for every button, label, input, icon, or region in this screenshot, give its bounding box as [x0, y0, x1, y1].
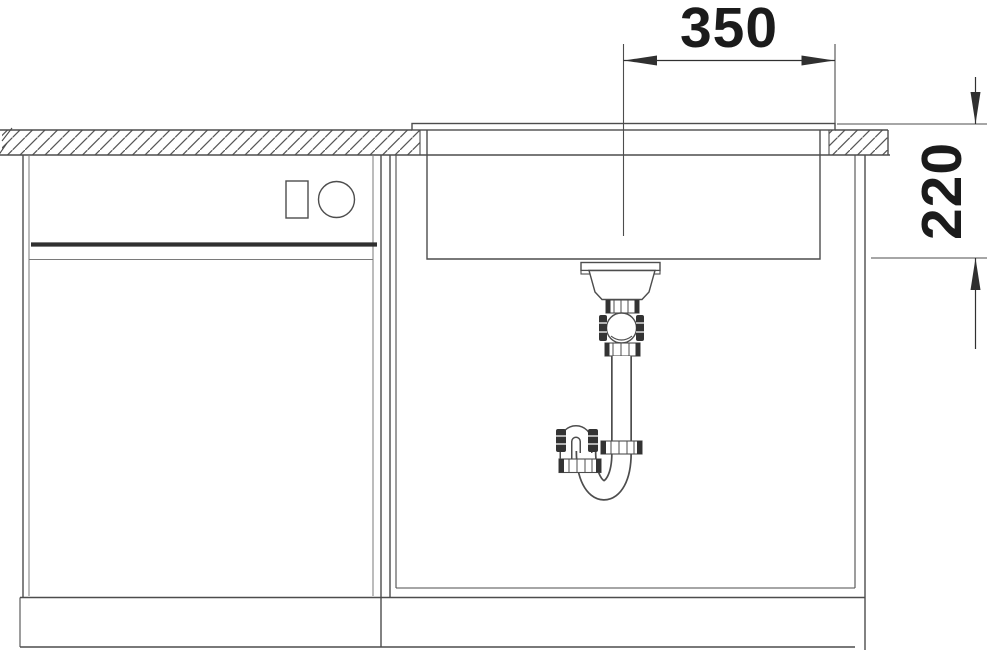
- countertop-hatch-left: [2, 131, 420, 155]
- dishwasher-knob-icon: [319, 182, 355, 218]
- dimension-350-value: 350: [680, 0, 778, 60]
- drain-flange: [581, 263, 660, 271]
- dimension-220-arrow-up: [971, 258, 981, 290]
- trap-outlet-nut: [559, 459, 601, 473]
- installation-drawing: 350 220: [0, 0, 992, 650]
- countertop-hatch-right: [829, 131, 888, 155]
- drawing-canvas: 350 220: [0, 0, 992, 650]
- dimension-350-arrow-right: [802, 56, 835, 66]
- drain-nut-lower: [605, 343, 640, 356]
- drain-assembly: [581, 263, 660, 357]
- dishwasher-cabinet: [23, 155, 381, 647]
- trap-loop-clamp-left: [556, 429, 566, 452]
- dimension-350-arrow-left: [624, 56, 657, 66]
- dimension-350: 350: [624, 0, 836, 236]
- trap-pipe-nut: [601, 441, 642, 454]
- dishwasher-control-button-icon: [286, 181, 308, 218]
- drain-nut-upper: [606, 300, 639, 313]
- plinth: [20, 598, 865, 648]
- ball-joint-clamp-right: [636, 315, 644, 341]
- trap-loop-clamp-right: [588, 429, 598, 452]
- dimension-220-arrow-down: [971, 92, 981, 124]
- ball-joint-clamp-left: [599, 315, 607, 341]
- siphon-trap: [556, 356, 642, 490]
- drain-ball-joint: [607, 313, 637, 343]
- drain-strainer-cup: [589, 271, 655, 300]
- countertop: [0, 128, 890, 156]
- dimension-220-value: 220: [910, 142, 974, 240]
- dimension-220: 220: [837, 77, 987, 349]
